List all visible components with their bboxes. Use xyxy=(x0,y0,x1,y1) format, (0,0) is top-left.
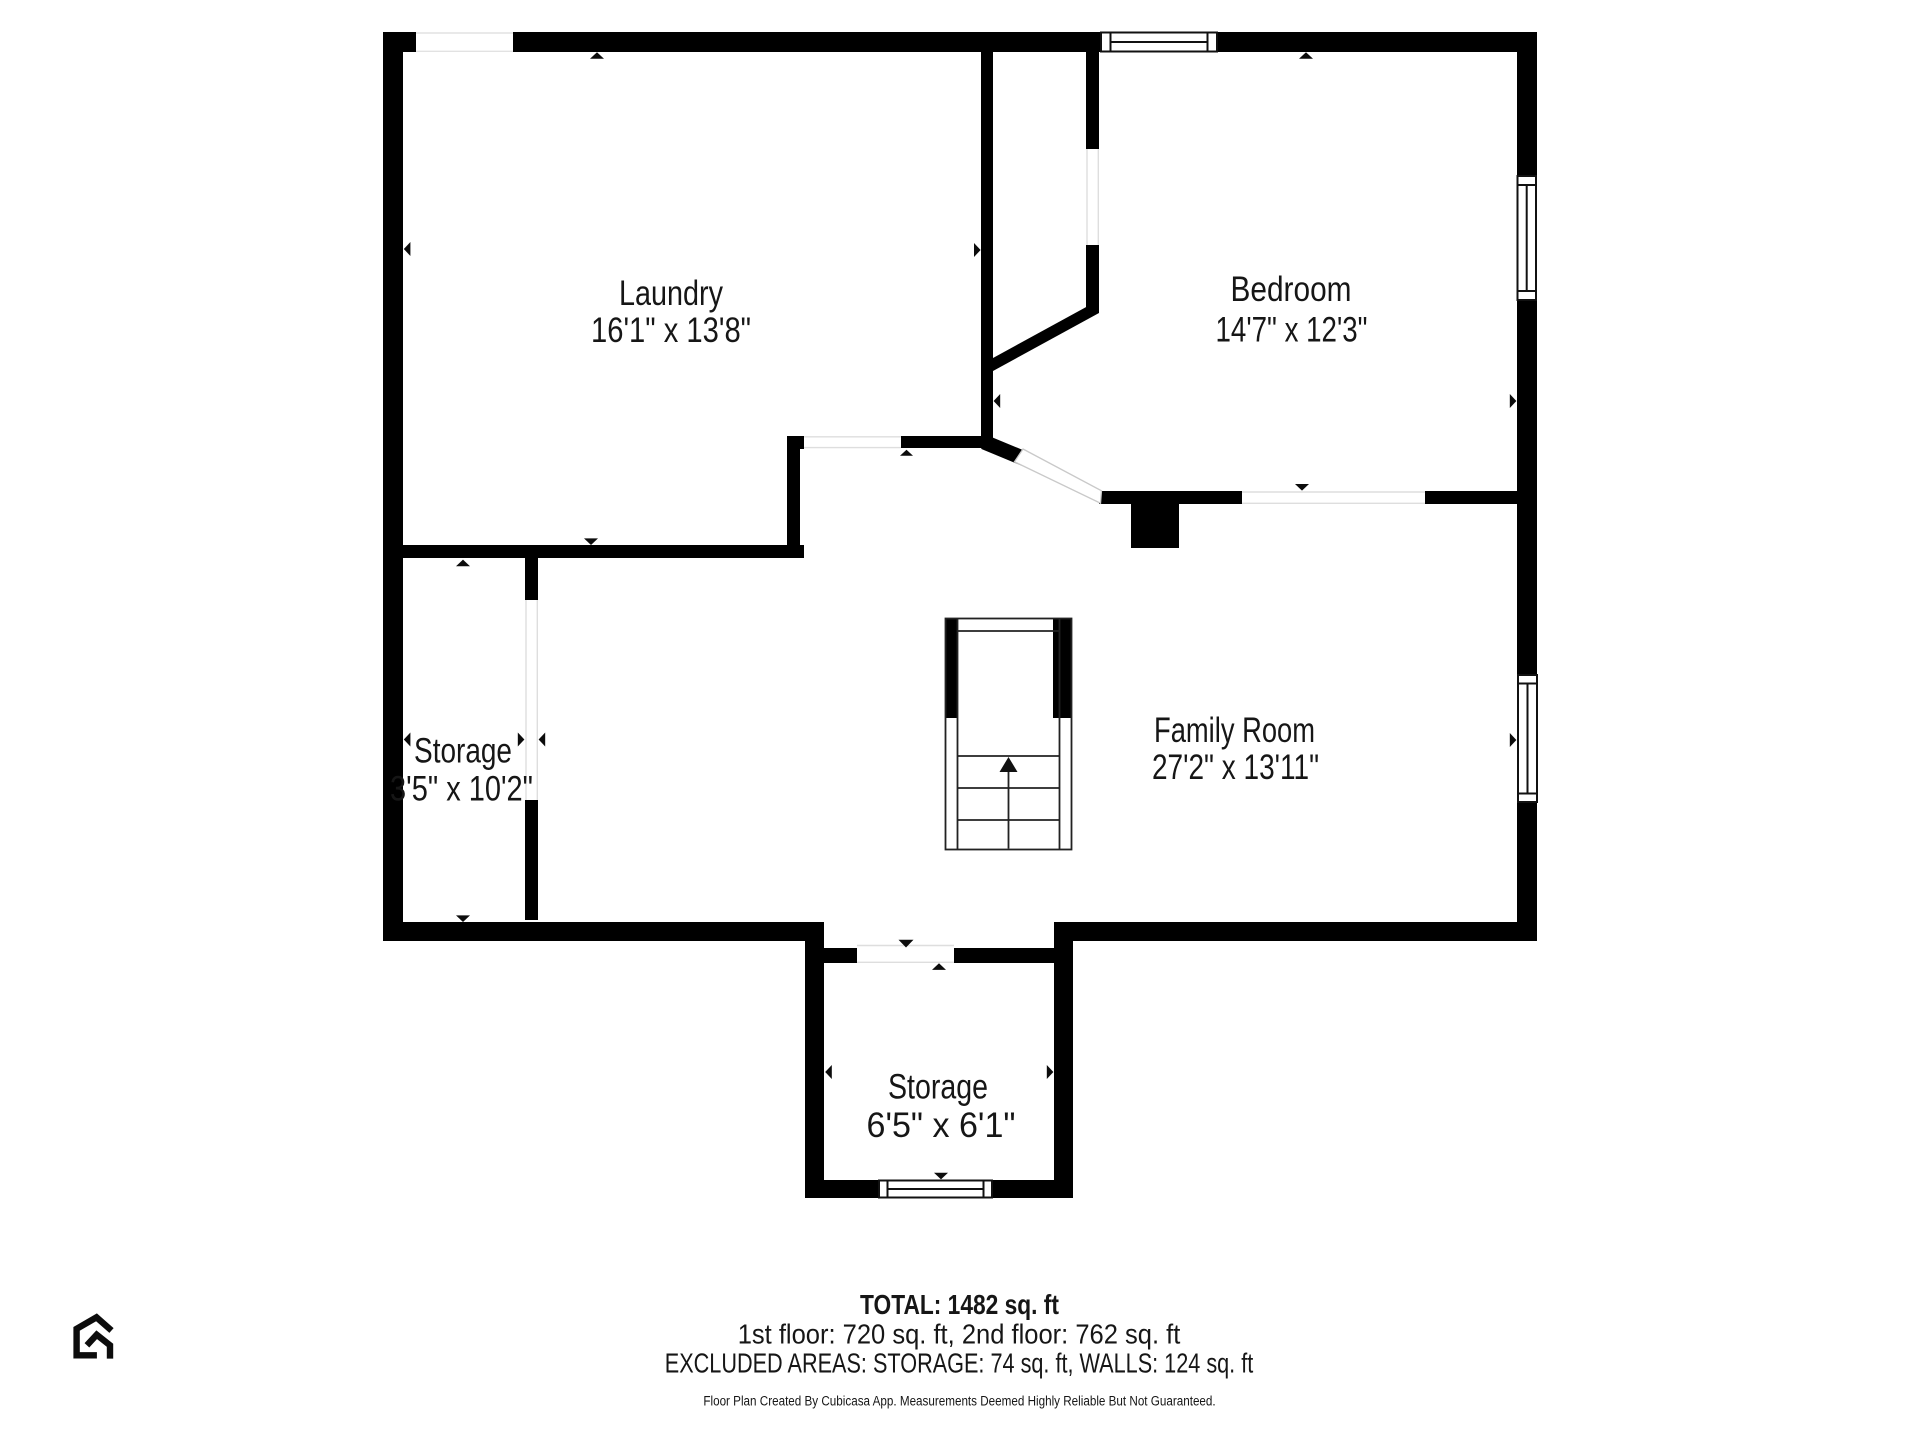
svg-text:Storage: Storage xyxy=(888,1067,988,1106)
svg-text:Storage: Storage xyxy=(414,730,512,770)
svg-text:TOTAL: 1482 sq. ft: TOTAL: 1482 sq. ft xyxy=(860,1290,1059,1321)
svg-text:EXCLUDED AREAS: STORAGE: 74 sq: EXCLUDED AREAS: STORAGE: 74 sq. ft, WALL… xyxy=(665,1348,1254,1379)
svg-text:Family Room: Family Room xyxy=(1154,711,1315,750)
svg-text:14'7" x 12'3": 14'7" x 12'3" xyxy=(1216,309,1368,349)
svg-text:3'5" x 10'2": 3'5" x 10'2" xyxy=(390,769,533,808)
svg-text:6'5" x 6'1": 6'5" x 6'1" xyxy=(867,1107,1016,1145)
svg-text:Laundry: Laundry xyxy=(619,273,723,312)
svg-text:16'1" x 13'8": 16'1" x 13'8" xyxy=(591,311,751,350)
svg-text:27'2" x 13'11": 27'2" x 13'11" xyxy=(1152,747,1319,787)
svg-text:1st floor: 720 sq. ft, 2nd flo: 1st floor: 720 sq. ft, 2nd floor: 762 sq… xyxy=(738,1319,1181,1350)
svg-text:Floor Plan Created By Cubicasa: Floor Plan Created By Cubicasa App. Meas… xyxy=(703,1394,1215,1409)
svg-text:Bedroom: Bedroom xyxy=(1231,270,1352,309)
